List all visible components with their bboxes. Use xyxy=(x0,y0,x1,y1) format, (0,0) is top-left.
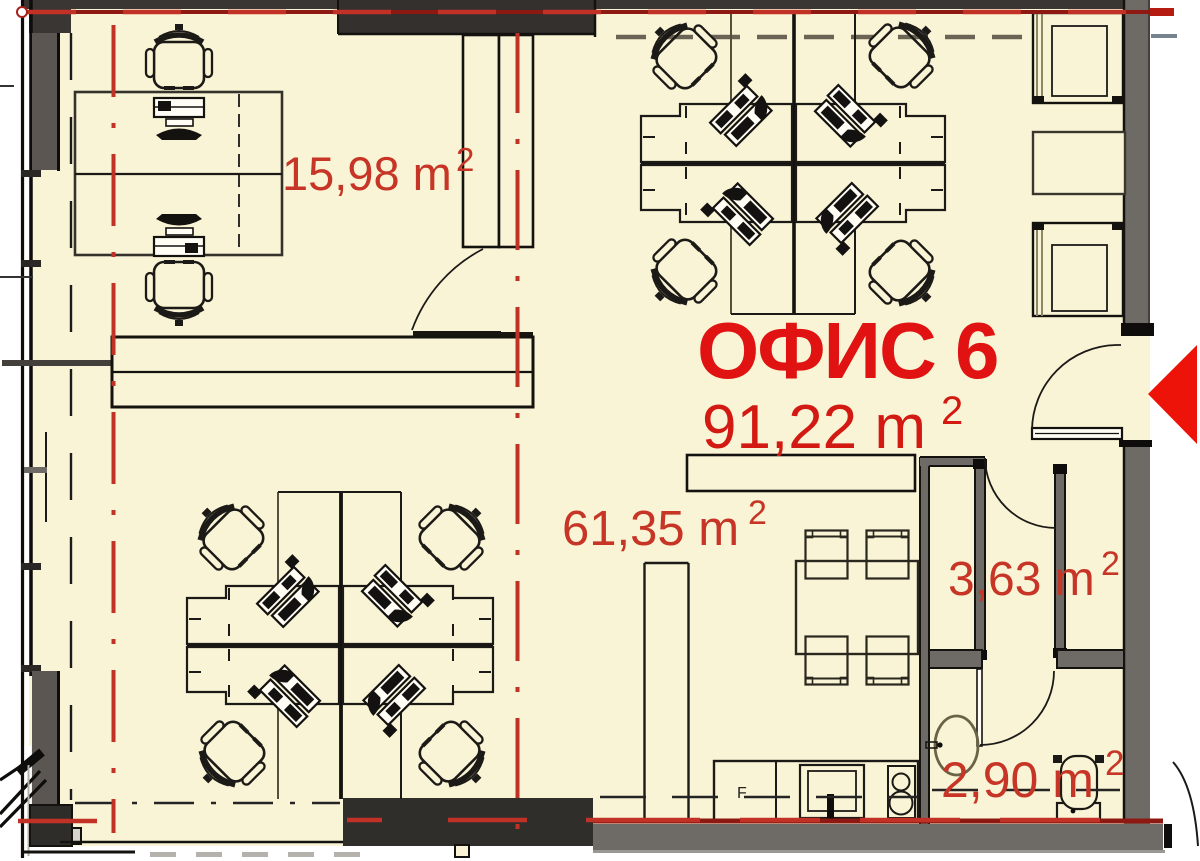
svg-text:2,90 m: 2,90 m xyxy=(941,752,1094,808)
svg-text:15,98 m: 15,98 m xyxy=(282,147,452,200)
svg-text:2: 2 xyxy=(1105,744,1124,783)
svg-text:2: 2 xyxy=(456,141,474,178)
svg-text:91,22 m: 91,22 m xyxy=(702,393,926,462)
svg-text:F: F xyxy=(737,785,747,802)
svg-text:61,35 m: 61,35 m xyxy=(562,502,739,556)
svg-text:ОФИС 6: ОФИС 6 xyxy=(697,306,998,395)
svg-text:2: 2 xyxy=(1101,545,1120,583)
svg-text:3,63 m: 3,63 m xyxy=(948,553,1095,606)
svg-text:2: 2 xyxy=(748,494,767,532)
svg-text:2: 2 xyxy=(941,389,963,433)
